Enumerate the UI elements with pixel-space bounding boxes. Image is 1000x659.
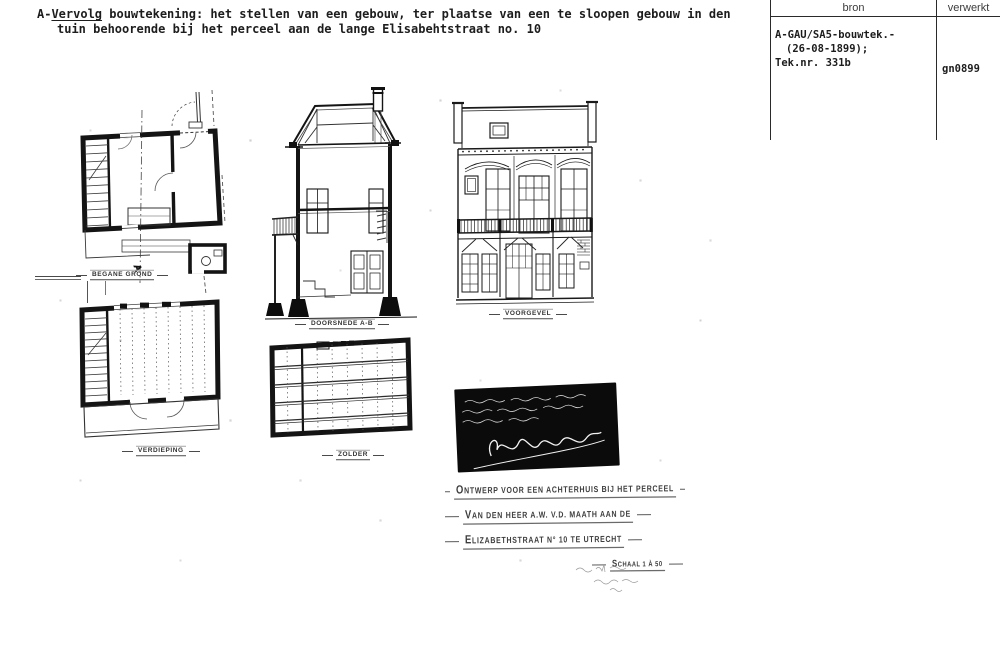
interior-steps xyxy=(298,281,351,297)
title-dash xyxy=(445,491,450,492)
handwritten-date-note xyxy=(572,560,662,594)
label-dash xyxy=(322,455,333,456)
beam-lines xyxy=(274,359,409,424)
title-dash xyxy=(628,539,642,540)
ground-windows xyxy=(462,244,574,298)
attic-plan-drawing xyxy=(262,335,447,465)
description-line1-rest: bouwtekening: het stellen van een gebouw… xyxy=(102,7,731,21)
section-door xyxy=(351,251,383,293)
base-line xyxy=(456,298,594,300)
ground-floor-plan-drawing: A xyxy=(62,80,242,295)
courtyard-lines xyxy=(85,230,190,258)
description-text: A-Vervolg bouwtekening: het stellen van … xyxy=(37,7,731,37)
site-boundary-line xyxy=(87,281,88,303)
first-floor-slab xyxy=(298,208,390,210)
ground-floor-front xyxy=(456,232,594,304)
stair-hatch xyxy=(86,145,108,226)
plan-outer-walls xyxy=(82,302,218,405)
title-text: ELIZABETHSTRAAT N° 10 TE UTRECHT xyxy=(463,532,624,550)
balcony-railing xyxy=(457,218,593,233)
bron-line-1: A-GAU/SA5-bouwtek.- xyxy=(775,28,934,42)
description-line1: A-Vervolg bouwtekening: het stellen van … xyxy=(37,7,731,22)
label-text: VOORGEVEL xyxy=(503,309,553,320)
column-header-verwerkt: verwerkt xyxy=(937,0,1000,16)
label-text: DOORSNEDE A-B xyxy=(309,319,375,330)
label-dash xyxy=(157,275,168,276)
label-dash xyxy=(556,314,567,315)
stair-wall xyxy=(107,309,109,403)
title-dash xyxy=(669,564,683,565)
archive-card-page: A-Vervolg bouwtekening: het stellen van … xyxy=(0,0,1000,659)
title-text: VAN DEN HEER A.W. V.D. MAATH AAN DE xyxy=(463,507,633,525)
title-block: ONTWERP VOOR EEN ACHTERHUIS BIJ HET PERC… xyxy=(445,484,685,570)
label-text: BEGANE GROND xyxy=(90,270,154,281)
first-floor-plan-drawing xyxy=(62,295,242,465)
window-arches xyxy=(465,158,590,172)
label-dash xyxy=(122,451,133,452)
foundation-footings xyxy=(266,297,401,317)
bron-line-2: (26-08-1899); xyxy=(775,42,934,56)
site-boundary-line xyxy=(35,276,81,280)
scan-noise xyxy=(0,50,1,51)
title-dash xyxy=(445,541,459,542)
bron-line-3: Tek.nr. 331b xyxy=(775,56,934,70)
label-dash xyxy=(373,455,384,456)
boundary-dashes xyxy=(204,90,225,294)
gate-detail xyxy=(172,92,202,128)
roof-face xyxy=(462,106,588,148)
section-drawing xyxy=(265,85,420,335)
attic-floor-slab xyxy=(298,143,390,145)
description-underlined-word: Vervolg xyxy=(51,7,102,21)
facade-drawing xyxy=(445,92,620,322)
annex-outbuilding xyxy=(190,245,225,272)
interior-wall xyxy=(302,347,303,433)
label-dash xyxy=(378,324,389,325)
joist-lines xyxy=(120,306,205,396)
handwritten-approval-note xyxy=(454,383,619,473)
verwerkt-cell: gn0899 xyxy=(937,17,1000,140)
stair-wall xyxy=(108,137,110,230)
label-dash xyxy=(295,324,306,325)
label-text: VERDIEPING xyxy=(136,446,186,457)
bron-cell: A-GAU/SA5-bouwtek.- (26-08-1899); Tek.nr… xyxy=(770,17,937,140)
plan-outer-walls xyxy=(83,131,220,230)
archive-table-body-row: A-GAU/SA5-bouwtek.- (26-08-1899); Tek.nr… xyxy=(770,17,1000,140)
drawing-sheet: A xyxy=(0,50,760,659)
furniture-outline xyxy=(128,208,170,225)
signature-photo-block xyxy=(454,383,619,473)
label-voorgevel: VOORGEVEL xyxy=(489,309,567,319)
roof-profile xyxy=(285,104,401,148)
archive-table: bron verwerkt A-GAU/SA5-bouwtek.- (26-08… xyxy=(770,0,1000,140)
description-prefix: A- xyxy=(37,7,51,21)
label-verdieping: VERDIEPING xyxy=(122,446,200,456)
title-line-1: ONTWERP VOOR EEN ACHTERHUIS BIJ HET PERC… xyxy=(445,483,685,499)
label-dash xyxy=(76,275,87,276)
title-dash xyxy=(637,514,651,515)
label-begane-grond: BEGANE GROND xyxy=(76,270,168,280)
stair-hatch xyxy=(85,318,107,396)
upper-windows xyxy=(465,169,587,233)
stair-section xyxy=(376,211,387,243)
label-text: ZOLDER xyxy=(336,450,370,461)
signature-flourish xyxy=(472,432,605,469)
porch-balcony xyxy=(272,217,298,303)
label-dash xyxy=(189,451,200,452)
archive-table-header-row: bron verwerkt xyxy=(770,0,1000,17)
label-doorsnede: DOORSNEDE A-B xyxy=(295,319,389,329)
column-header-bron: bron xyxy=(770,0,937,16)
section-windows xyxy=(307,189,383,233)
title-line-3: ELIZABETHSTRAAT N° 10 TE UTRECHT xyxy=(445,533,685,549)
label-zolder: ZOLDER xyxy=(322,450,384,460)
title-line-2: VAN DEN HEER A.W. V.D. MAATH AAN DE xyxy=(445,508,685,524)
description-line2: tuin behoorende bij het perceel aan de l… xyxy=(37,22,731,37)
cornice xyxy=(458,147,592,155)
label-dash xyxy=(489,314,500,315)
title-dash xyxy=(445,516,459,517)
plan-outer-walls xyxy=(272,340,410,435)
site-boundary-line xyxy=(105,281,106,295)
title-text: ONTWERP VOOR EEN ACHTERHUIS BIJ HET PERC… xyxy=(454,481,676,500)
title-dash xyxy=(680,489,685,490)
